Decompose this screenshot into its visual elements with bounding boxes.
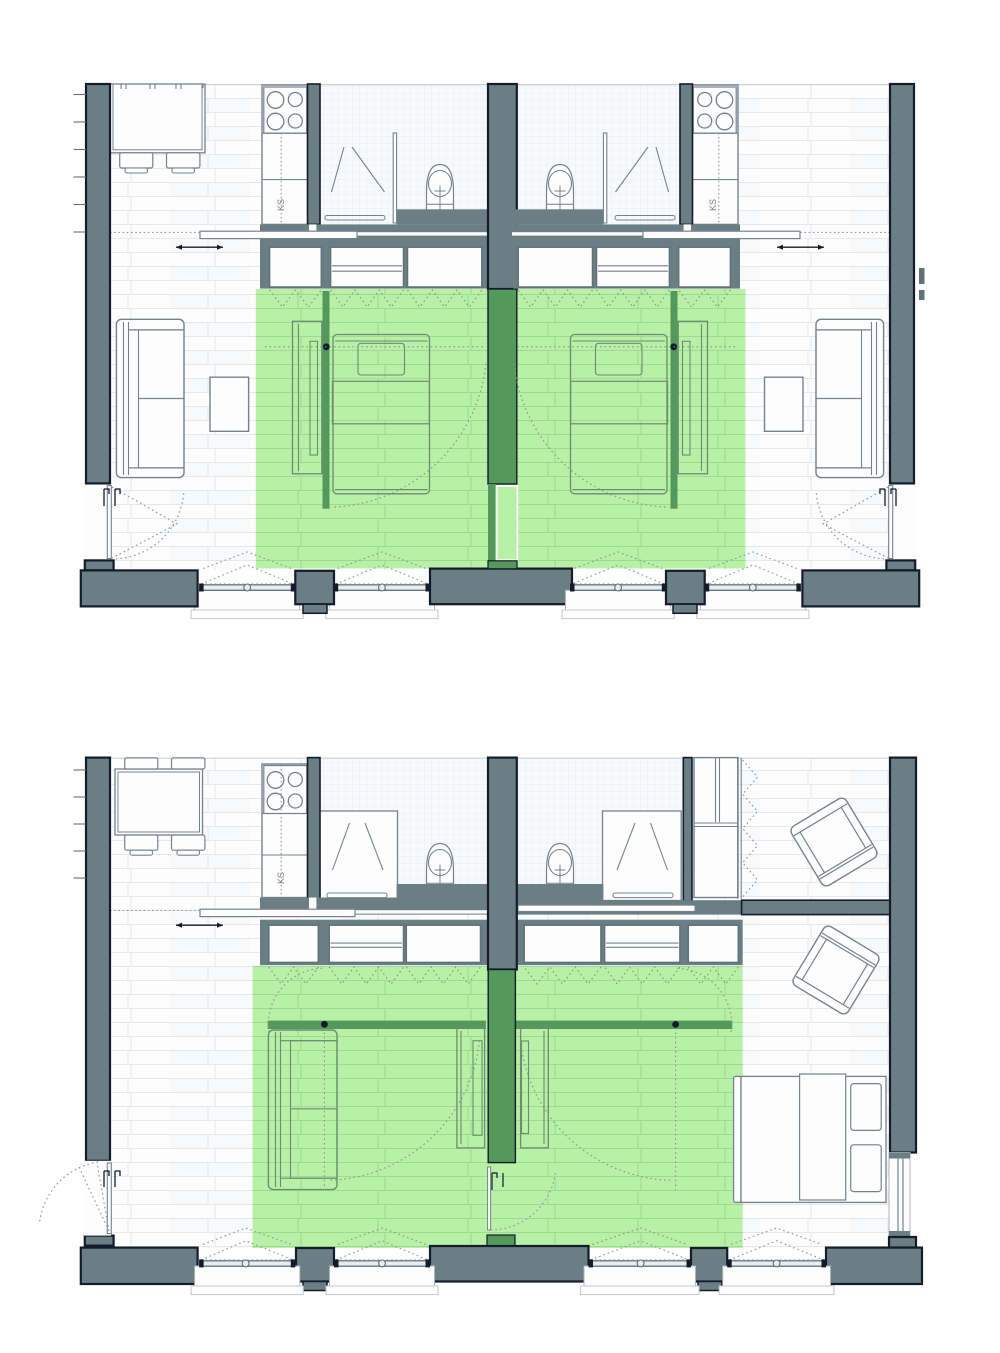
svg-text:KS: KS (276, 872, 286, 884)
svg-text:KS: KS (708, 199, 718, 211)
svg-text:KS: KS (276, 199, 286, 211)
